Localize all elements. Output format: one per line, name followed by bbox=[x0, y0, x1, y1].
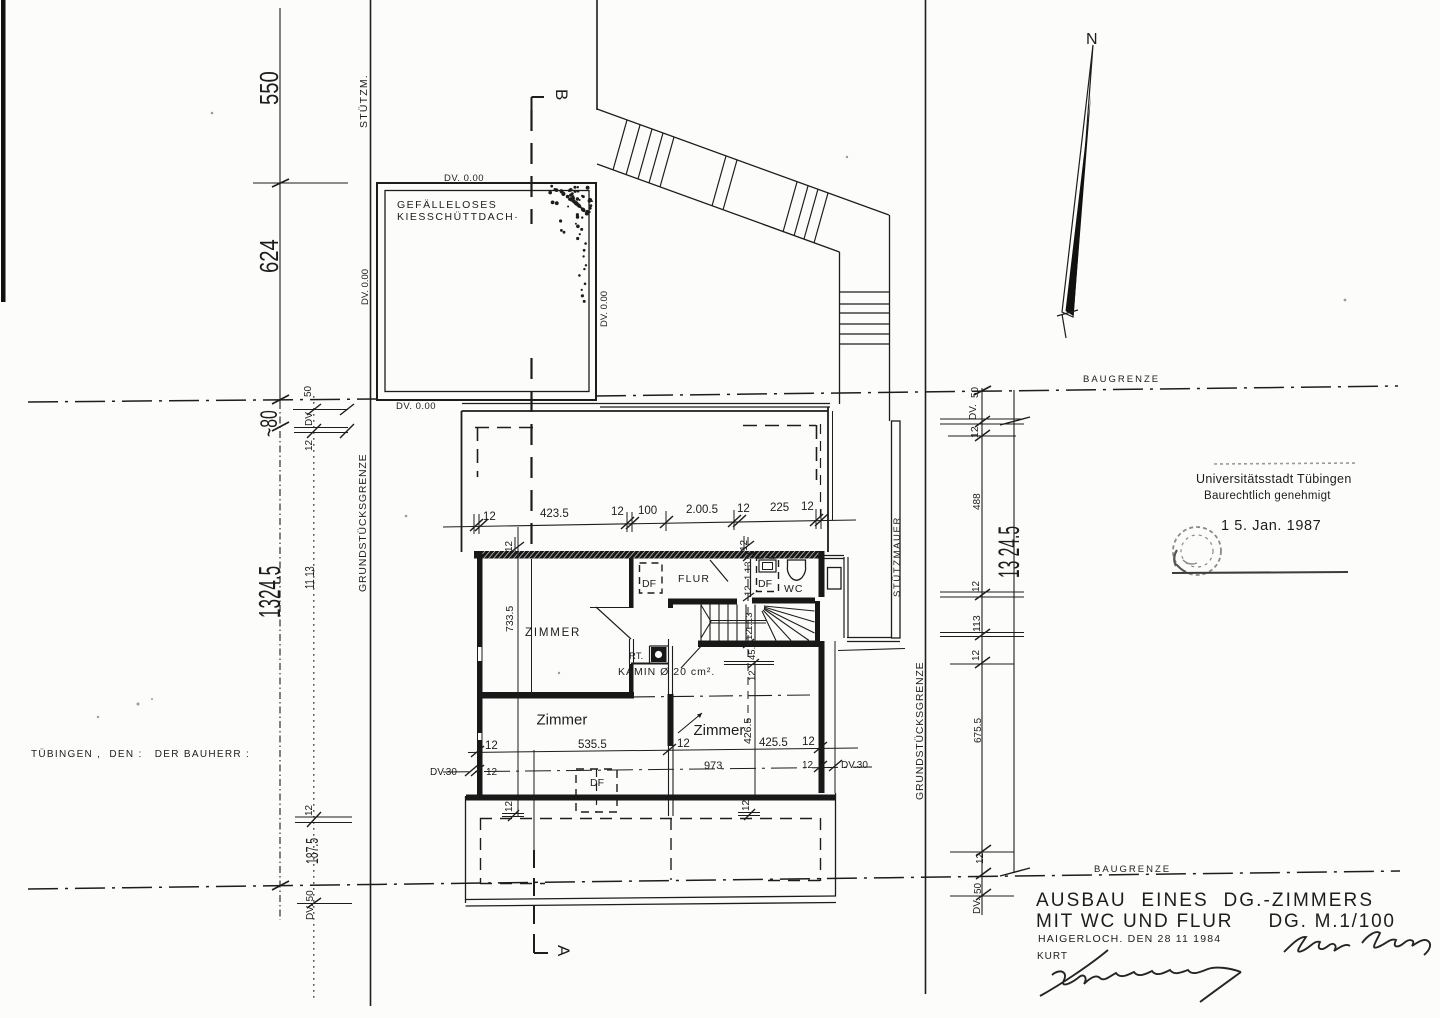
svg-text:12: 12 bbox=[304, 439, 315, 451]
svg-text:423.5: 423.5 bbox=[540, 508, 569, 520]
svg-text:426.5: 426.5 bbox=[742, 718, 754, 744]
svg-text:KIESSCHÜTTDACH·: KIESSCHÜTTDACH· bbox=[397, 211, 519, 223]
svg-text:DV.30: DV.30 bbox=[841, 760, 868, 771]
svg-text:GEFÄLLELOSES: GEFÄLLELOSES bbox=[397, 199, 497, 211]
svg-text:DV.: DV. bbox=[972, 898, 983, 914]
svg-text:733.5: 733.5 bbox=[504, 606, 516, 632]
svg-text:DF: DF bbox=[642, 578, 656, 590]
svg-text:DV.: DV. bbox=[968, 404, 979, 420]
svg-text:550: 550 bbox=[255, 71, 284, 105]
svg-text:FLUR: FLUR bbox=[678, 573, 710, 585]
svg-text:BAUGRENZE: BAUGRENZE bbox=[1094, 864, 1171, 875]
svg-text:12: 12 bbox=[802, 760, 814, 771]
svg-text:113: 113 bbox=[971, 615, 983, 632]
svg-text:12: 12 bbox=[504, 800, 515, 812]
svg-text:50: 50 bbox=[303, 385, 314, 397]
svg-text:2.00.5: 2.00.5 bbox=[686, 504, 718, 516]
svg-text:Zimmer: Zimmer bbox=[694, 722, 745, 739]
svg-text:12: 12 bbox=[975, 852, 986, 864]
svg-text:DV. 0.00: DV. 0.00 bbox=[396, 401, 436, 412]
svg-text:12: 12 bbox=[611, 506, 624, 518]
svg-text:DV. 0.00: DV. 0.00 bbox=[444, 173, 484, 184]
svg-text:45.: 45. bbox=[747, 647, 758, 660]
svg-text:12: 12 bbox=[744, 629, 755, 640]
svg-text:DF: DF bbox=[758, 578, 772, 590]
svg-text:N: N bbox=[1086, 31, 1098, 48]
svg-text:B: B bbox=[552, 89, 571, 100]
svg-text:100: 100 bbox=[638, 505, 657, 517]
svg-text:488: 488 bbox=[972, 493, 983, 510]
svg-text:13 24.5: 13 24.5 bbox=[993, 526, 1027, 578]
svg-text:12: 12 bbox=[304, 804, 315, 816]
svg-text:GRUNDSTÜCKSGRENZE: GRUNDSTÜCKSGRENZE bbox=[914, 662, 926, 800]
svg-text:12: 12 bbox=[801, 501, 814, 513]
svg-text:12: 12 bbox=[971, 649, 982, 661]
svg-text:12: 12 bbox=[485, 740, 498, 752]
svg-text:50: 50 bbox=[970, 386, 981, 398]
svg-text:ZIMMER: ZIMMER bbox=[525, 627, 581, 639]
svg-text:Universitätsstadt Tübingen: Universitätsstadt Tübingen bbox=[1196, 472, 1352, 486]
svg-text:AUSBAU EINES DG.-ZIMMERS: AUSBAU EINES DG.-ZIMMERS bbox=[1036, 890, 1372, 911]
svg-text:12: 12 bbox=[802, 736, 815, 748]
svg-text:DV. 50: DV. 50 bbox=[305, 890, 316, 920]
svg-text:KAMIN Ø 20 cm².: KAMIN Ø 20 cm². bbox=[618, 666, 715, 678]
svg-text:425.5: 425.5 bbox=[759, 737, 788, 749]
svg-text:973: 973 bbox=[704, 760, 722, 772]
svg-text:STÜTZMAUER: STÜTZMAUER bbox=[892, 516, 903, 597]
svg-text:12: 12 bbox=[483, 511, 496, 523]
svg-text:BAUGRENZE: BAUGRENZE bbox=[1083, 374, 1160, 385]
svg-text:1.13: 1.13 bbox=[743, 562, 754, 581]
svg-text:KURT: KURT bbox=[1037, 951, 1121, 962]
svg-text:12: 12 bbox=[737, 503, 750, 515]
svg-text:HAIGERLOCH. DEN 28 11 1984: HAIGERLOCH. DEN 28 11 1984 bbox=[1038, 933, 1221, 945]
svg-text:STÜTZM.: STÜTZM. bbox=[358, 74, 370, 128]
svg-text:12: 12 bbox=[741, 799, 752, 811]
svg-text:225: 225 bbox=[770, 502, 789, 514]
svg-text:DV. 0.00: DV. 0.00 bbox=[360, 269, 371, 305]
svg-text:187.5: 187.5 bbox=[303, 838, 323, 864]
svg-text:DV.30: DV.30 bbox=[430, 767, 457, 778]
svg-text:RT.: RT. bbox=[629, 651, 643, 662]
svg-text:12: 12 bbox=[971, 580, 982, 592]
svg-text:DV. 0.00: DV. 0.00 bbox=[599, 291, 610, 327]
svg-text:1.13: 1.13 bbox=[744, 613, 755, 632]
svg-text:12: 12 bbox=[677, 738, 690, 750]
svg-text:12: 12 bbox=[486, 767, 498, 778]
svg-text:~80: ~80 bbox=[257, 410, 283, 437]
svg-text:A: A bbox=[554, 945, 573, 957]
svg-text:1 5. Jan. 1987: 1 5. Jan. 1987 bbox=[1221, 518, 1321, 534]
svg-text:535.5: 535.5 bbox=[578, 739, 607, 751]
svg-text:GRUNDSTÜCKSGRENZE: GRUNDSTÜCKSGRENZE bbox=[357, 454, 369, 592]
svg-text:Zimmer: Zimmer bbox=[537, 712, 588, 729]
svg-text:12: 12 bbox=[504, 540, 515, 552]
svg-text:624: 624 bbox=[255, 239, 284, 273]
svg-text:50: 50 bbox=[973, 882, 984, 894]
svg-text:TÜBINGEN , DEN : DER BAUHER: TÜBINGEN , DEN : DER BAUHERR : bbox=[31, 748, 250, 760]
svg-text:675.5: 675.5 bbox=[973, 718, 984, 743]
svg-text:1324.5: 1324.5 bbox=[253, 566, 288, 618]
svg-text:DF: DF bbox=[590, 777, 604, 789]
svg-text:11 13: 11 13 bbox=[304, 566, 318, 589]
svg-text:Baurechtlich genehmigt: Baurechtlich genehmigt bbox=[1204, 490, 1331, 502]
svg-text:12: 12 bbox=[747, 670, 758, 681]
svg-text:DV.: DV. bbox=[304, 410, 315, 426]
svg-text:12: 12 bbox=[969, 426, 981, 438]
svg-text:WC: WC bbox=[784, 583, 804, 595]
svg-text:MIT WC UND FLUR DG. M.1/10: MIT WC UND FLUR DG. M.1/100 bbox=[1036, 911, 1394, 932]
